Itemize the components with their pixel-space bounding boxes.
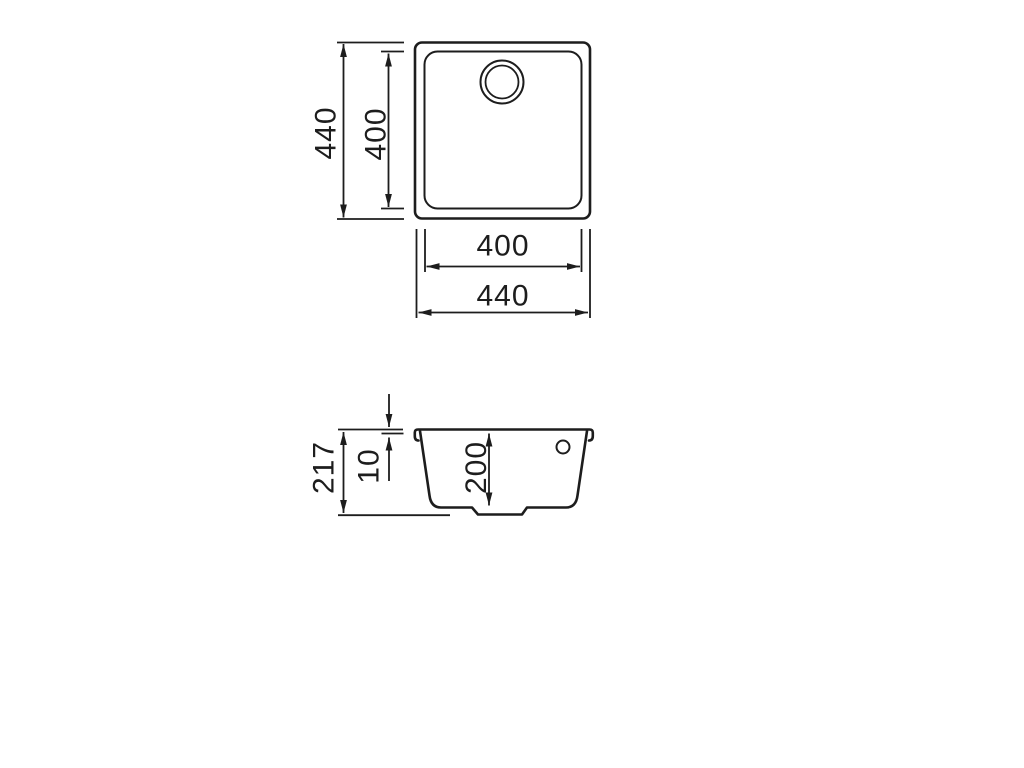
canvas-background xyxy=(0,0,1024,768)
dim-label-total-depth: 217 xyxy=(308,441,341,494)
dim-label-inner-height: 400 xyxy=(360,107,393,160)
dim-label-overall-width: 440 xyxy=(476,280,529,313)
dim-label-rim-thickness: 10 xyxy=(353,448,386,483)
technical-drawing: 440 400 400 440 xyxy=(0,0,1024,768)
dim-label-inner-width: 400 xyxy=(476,230,529,263)
dim-label-bowl-depth: 200 xyxy=(460,441,493,494)
dim-bowl-depth: 200 xyxy=(460,434,493,506)
dim-label-overall-height: 440 xyxy=(310,106,343,159)
